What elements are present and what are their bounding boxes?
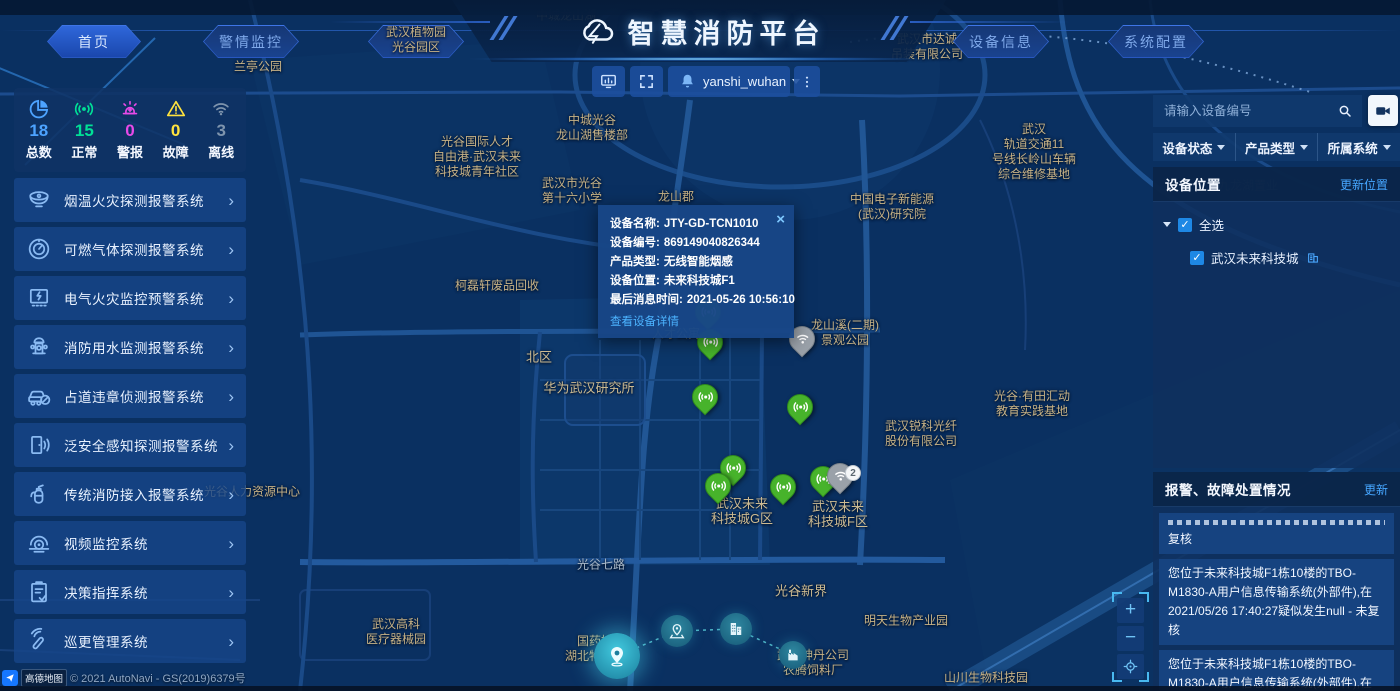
chevron-right-icon: › (228, 241, 234, 258)
popup-field-value: 869149040826344 (664, 234, 760, 253)
menu-item-smoke-fire[interactable]: 烟温火灾探测报警系统› (14, 178, 246, 222)
chevron-right-icon: › (228, 339, 234, 356)
tab-obscured[interactable] (368, 25, 464, 58)
chevron-right-icon: › (228, 486, 234, 503)
wifi-icon (210, 98, 232, 120)
chevron-down-icon (1300, 145, 1308, 150)
page-title-text: 智慧消防平台 (628, 12, 826, 51)
bottom-strip (0, 686, 1400, 691)
bell-icon (678, 72, 697, 91)
monitor-chart-icon (599, 72, 618, 91)
tab-alarm-monitoring[interactable]: 警情监控 (203, 25, 299, 58)
fullscreen-icon (638, 73, 655, 90)
gas-gauge-icon (14, 235, 64, 263)
page-title: 智慧消防平台 (575, 12, 826, 51)
username-label: yanshi_wuhan (703, 74, 786, 89)
poi-factory[interactable] (779, 641, 807, 669)
tab-system-config[interactable]: 系统配置 (1108, 25, 1204, 58)
building-icon[interactable] (1306, 251, 1320, 265)
stat-fault: 0 故障 (153, 98, 199, 166)
warning-icon (165, 98, 187, 120)
map-attribution: 高德地图 © 2021 AutoNavi - GS(2019)6379号 (2, 669, 246, 687)
filter-owning-system[interactable]: 所属系统 (1317, 133, 1400, 161)
alerts-panel-title: 报警、故障处置情况 (1165, 479, 1291, 499)
tree-node-label: 全选 (1199, 215, 1224, 234)
chevron-right-icon: › (228, 290, 234, 307)
alerts-list: 复核 您位于未来科技城F1栋10楼的TBO-M1830-A用户信息传输系统(外部… (1153, 507, 1400, 690)
popup-field-label: 设备名称: (610, 215, 660, 234)
more-menu-button[interactable] (794, 66, 820, 97)
tree-node-label: 武汉未来科技城 (1211, 248, 1299, 267)
menu-item-decision-command[interactable]: 决策指挥系统› (14, 570, 246, 614)
popup-field-value: JTY-GD-TCN1010 (664, 215, 759, 234)
hydrant-icon (14, 333, 64, 361)
view-device-details-link[interactable]: 查看设备详情 (610, 313, 679, 329)
alerts-panel: 报警、故障处置情况 更新 复核 您位于未来科技城F1栋10楼的TBO-M1830… (1153, 472, 1400, 691)
popup-field-label: 设备编号: (610, 234, 660, 253)
chevron-right-icon: › (228, 633, 234, 650)
chevron-down-icon (1383, 145, 1391, 150)
menu-item-electrical[interactable]: 电气火灾监控预警系统› (14, 276, 246, 320)
popup-field-value: 2021-05-26 10:56:10 (687, 291, 795, 310)
fullscreen-button[interactable] (630, 66, 663, 97)
menu-item-patrol[interactable]: 巡更管理系统› (14, 619, 246, 663)
alarm-systems-menu: 烟温火灾探测报警系统› 可燃气体探测报警系统› 电气火灾监控预警系统› 消防用水… (14, 178, 246, 663)
menu-item-video-surveillance[interactable]: 视频监控系统› (14, 521, 246, 565)
cluster-count-badge: 2 (845, 465, 861, 481)
poi-building[interactable] (720, 613, 752, 645)
menu-item-pan-security[interactable]: 泛安全感知探测报警系统› (14, 423, 246, 467)
sensor-door-icon (14, 431, 64, 459)
electric-panel-icon (14, 284, 64, 312)
chevron-down-icon (1217, 145, 1225, 150)
menu-item-gas[interactable]: 可燃气体探测报警系统› (14, 227, 246, 271)
clipped-text-strip (1168, 520, 1385, 525)
poi-location-pin[interactable] (594, 633, 640, 679)
device-marker-normal[interactable] (770, 474, 796, 508)
header-accent (910, 21, 1070, 23)
poi-map-pin[interactable] (661, 615, 693, 647)
popup-field-value: 无线智能烟感 (664, 253, 733, 272)
alert-item[interactable]: 您位于未来科技城F1栋10楼的TBO-M1830-A用户信息传输系统(外部件),… (1159, 650, 1394, 690)
close-icon[interactable]: × (776, 212, 785, 227)
locate-button[interactable] (1117, 654, 1144, 679)
siren-icon (119, 98, 141, 120)
popup-field-label: 最后消息时间: (610, 291, 683, 310)
device-stats-panel: 18 总数 15 正常 0 警报 0 故障 3 离线 (14, 88, 246, 172)
platform-logo-icon (575, 17, 615, 47)
checkbox-checked[interactable]: ✓ (1178, 218, 1192, 232)
device-marker-normal[interactable] (787, 394, 813, 428)
chevron-right-icon: › (228, 192, 234, 209)
alert-item-clipped[interactable]: 复核 (1159, 513, 1394, 554)
stat-offline: 3 离线 (198, 98, 244, 166)
camera-dome-icon (14, 529, 64, 557)
chevron-down-icon[interactable] (1163, 222, 1171, 227)
device-filter-bar: 设备状态 产品类型 所属系统 (1153, 133, 1400, 161)
device-location-panel: 设备位置 更新位置 ✓ 全选 ✓ 武汉未来科技城 (1153, 167, 1400, 468)
videocam-icon (1374, 102, 1392, 120)
chevron-right-icon: › (228, 437, 234, 454)
device-marker-normal[interactable] (692, 384, 718, 418)
copyright-text: © 2021 AutoNavi - GS(2019)6379号 (70, 670, 246, 686)
stat-normal: 15 正常 (62, 98, 108, 166)
location-tree: ✓ 全选 ✓ 武汉未来科技城 (1153, 202, 1400, 294)
header-accent (330, 21, 490, 23)
map-zoom-controls: + − (1112, 592, 1149, 682)
signal-icon (73, 98, 95, 120)
smoke-detector-icon (14, 186, 64, 214)
device-info-popup: × 设备名称:JTY-GD-TCN1010 设备编号:8691490408263… (598, 205, 794, 338)
stat-total: 18 总数 (16, 98, 62, 166)
checkbox-checked[interactable]: ✓ (1190, 251, 1204, 265)
filter-product-type[interactable]: 产品类型 (1235, 133, 1318, 161)
popup-field-label: 设备位置: (610, 272, 660, 291)
zoom-out-button[interactable]: − (1117, 626, 1144, 651)
tab-home[interactable]: 首页 (47, 25, 141, 58)
device-marker-normal[interactable] (705, 473, 731, 507)
tab-device-info[interactable]: 设备信息 (953, 25, 1049, 58)
update-alerts-link[interactable]: 更新 (1364, 481, 1388, 498)
chevron-right-icon: › (228, 535, 234, 552)
popup-field-label: 产品类型: (610, 253, 660, 272)
device-location-title: 设备位置 (1165, 174, 1221, 194)
clipboard-icon (14, 578, 64, 606)
pie-chart-icon (28, 98, 50, 120)
patrol-wand-icon (14, 627, 64, 655)
amap-logo-icon (2, 670, 18, 686)
stat-alarm: 0 警报 (107, 98, 153, 166)
search-input[interactable] (1162, 103, 1337, 119)
notification-user-button[interactable]: yanshi_wuhan (668, 66, 790, 97)
search-icon[interactable] (1337, 103, 1353, 119)
chevron-right-icon: › (228, 584, 234, 601)
menu-item-road-violation[interactable]: 占道违章侦测报警系统› (14, 374, 246, 418)
kebab-menu-icon (799, 73, 815, 91)
zoom-in-button[interactable]: + (1117, 598, 1144, 623)
menu-item-traditional-fire[interactable]: 传统消防接入报警系统› (14, 472, 246, 516)
camera-capture-button[interactable] (1368, 95, 1398, 126)
title-glow (470, 57, 930, 61)
update-location-link[interactable]: 更新位置 (1340, 176, 1388, 193)
popup-field-value: 未来科技城F1 (664, 272, 735, 291)
statistics-button[interactable] (592, 66, 625, 97)
tree-node-select-all[interactable]: ✓ 全选 (1163, 215, 1390, 234)
device-search-bar (1153, 95, 1362, 127)
amap-badge: 高德地图 (21, 669, 67, 687)
extinguisher-icon (14, 480, 64, 508)
filter-device-status[interactable]: 设备状态 (1153, 133, 1235, 161)
smart-fire-platform: 中城龙山湖 兰亭公园 武汉植物园 光谷园区 武汉市达诚 吊装有限公司 武汉 轨道… (0, 0, 1400, 691)
menu-item-fire-water[interactable]: 消防用水监测报警系统› (14, 325, 246, 369)
alert-item[interactable]: 您位于未来科技城F1栋10楼的TBO-M1830-A用户信息传输系统(外部件),… (1159, 559, 1394, 645)
chevron-right-icon: › (228, 388, 234, 405)
tree-node-site[interactable]: ✓ 武汉未来科技城 (1190, 248, 1390, 267)
vehicle-icon (14, 382, 64, 410)
